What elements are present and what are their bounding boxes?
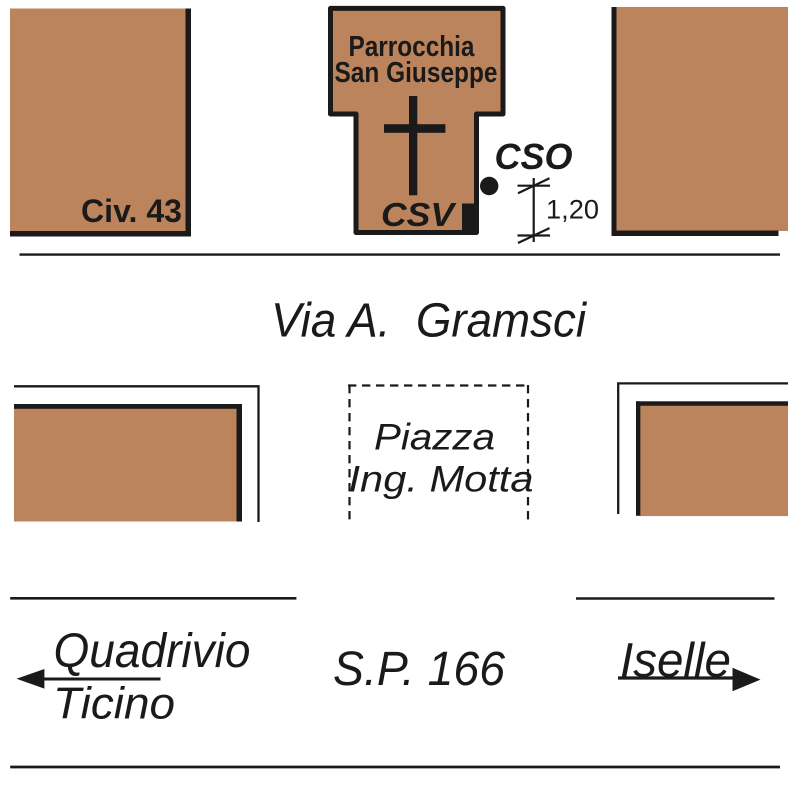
- svg-text:Ticino: Ticino: [53, 679, 175, 728]
- svg-text:CSV: CSV: [381, 197, 457, 234]
- svg-text:1,20: 1,20: [546, 195, 599, 225]
- svg-text:S.P. 166: S.P. 166: [333, 643, 505, 696]
- svg-text:CSO: CSO: [495, 136, 573, 177]
- svg-text:Ing. Motta: Ing. Motta: [349, 459, 534, 500]
- svg-text:Piazza: Piazza: [374, 417, 495, 458]
- svg-text:Civ. 43: Civ. 43: [81, 193, 182, 229]
- svg-text:Via A. Gramsci: Via A. Gramsci: [271, 295, 587, 348]
- svg-text:Quadrivio: Quadrivio: [54, 625, 251, 678]
- svg-text:San Giuseppe: San Giuseppe: [335, 57, 498, 89]
